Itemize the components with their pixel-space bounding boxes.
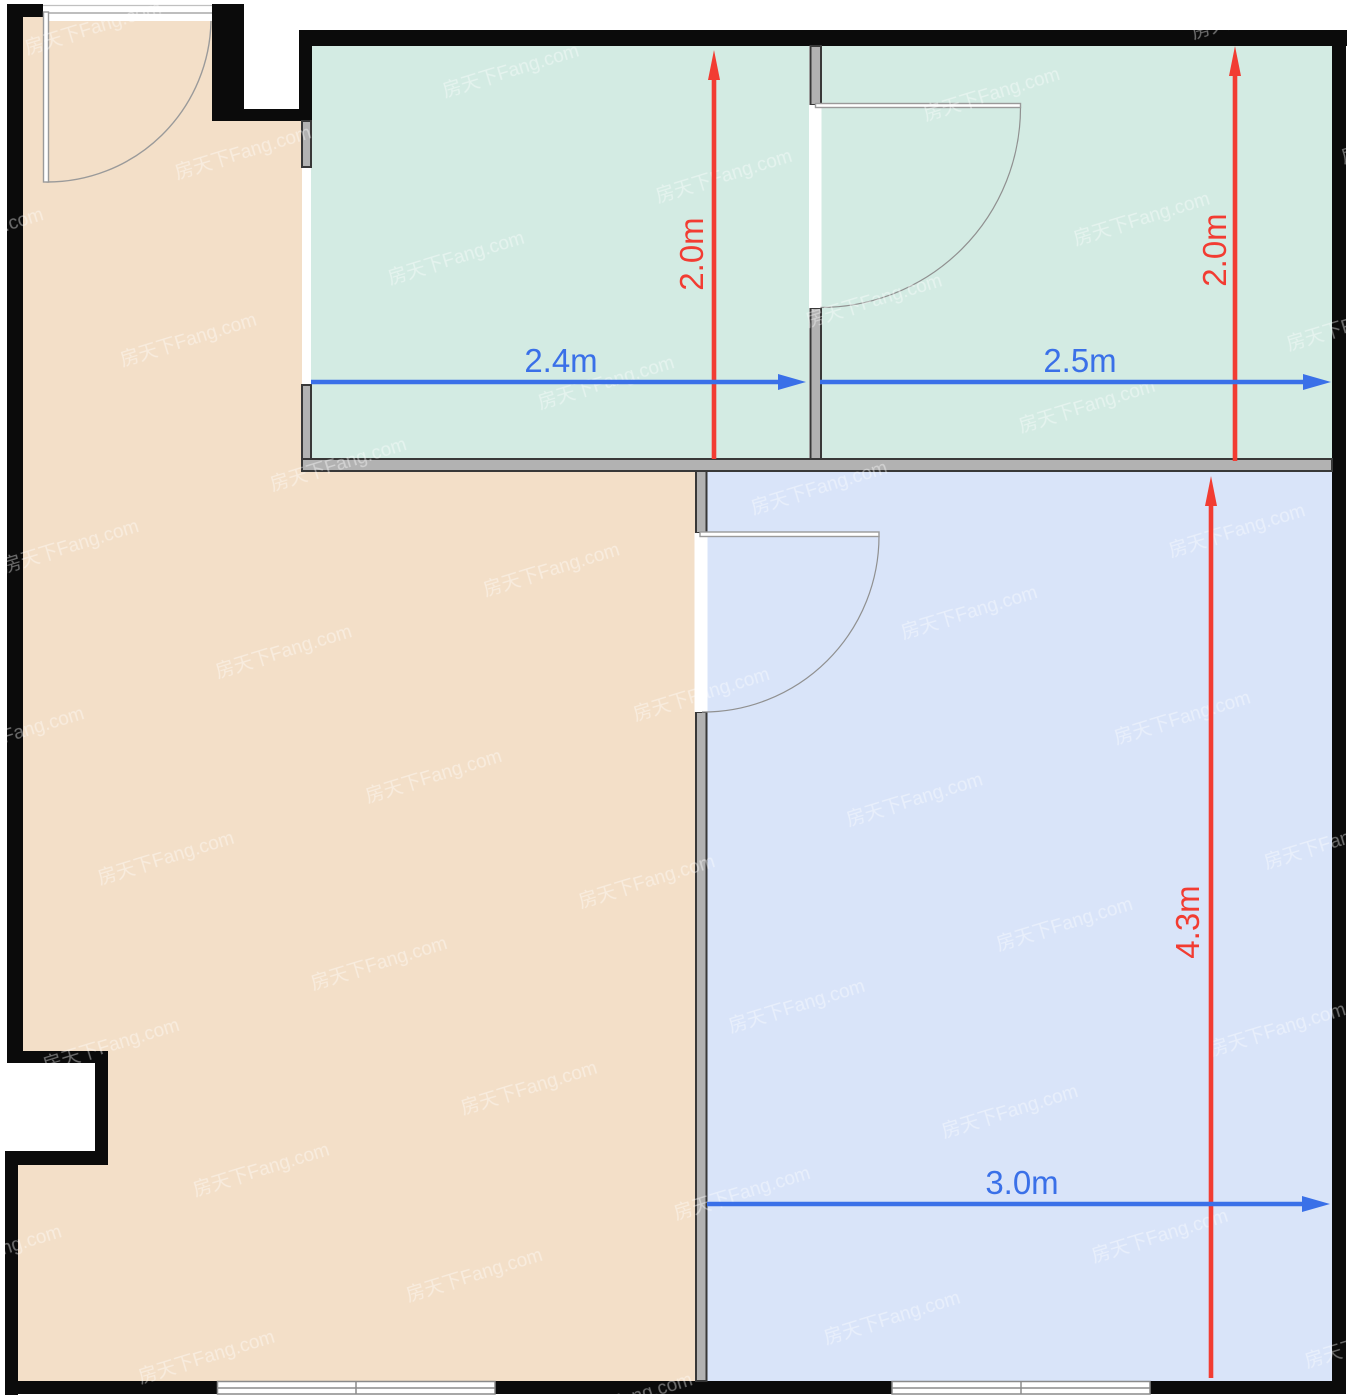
svg-text:2.0m: 2.0m — [1196, 213, 1233, 286]
svg-text:3.0m: 3.0m — [985, 1164, 1058, 1201]
svg-text:2.0m: 2.0m — [673, 217, 710, 290]
svg-text:4.3m: 4.3m — [1169, 885, 1206, 958]
svg-text:2.4m: 2.4m — [524, 342, 597, 379]
svg-text:2.5m: 2.5m — [1043, 342, 1116, 379]
